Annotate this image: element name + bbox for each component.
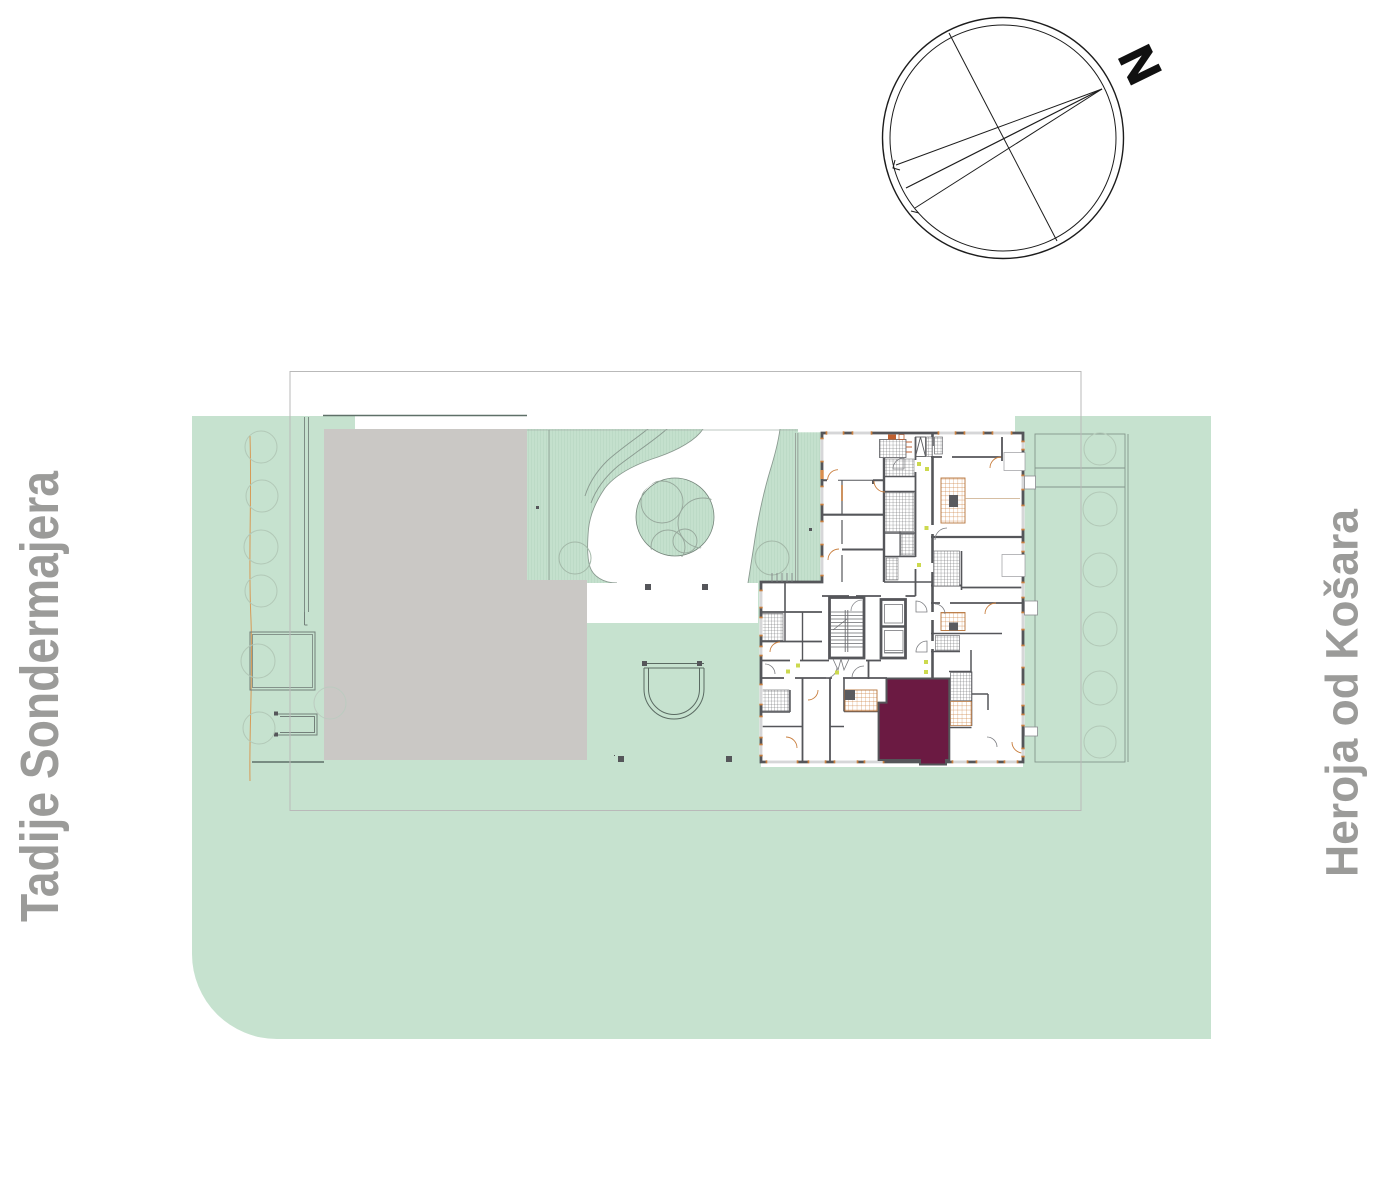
svg-text:Tadije Sondermajera: Tadije Sondermajera [10, 470, 70, 922]
svg-text:N: N [1108, 38, 1171, 92]
svg-text:Heroja od Košara: Heroja od Košara [1317, 508, 1368, 877]
